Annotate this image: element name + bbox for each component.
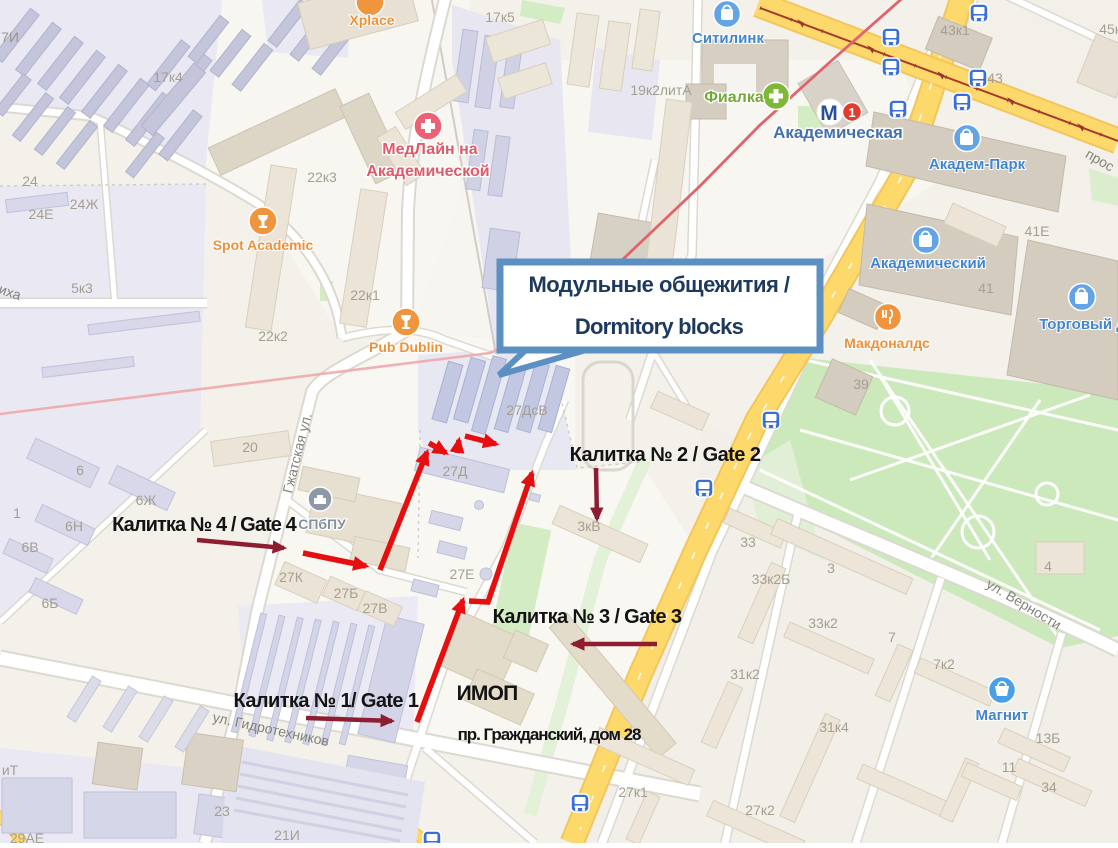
svg-text:33: 33 [740, 534, 756, 550]
svg-text:Академической: Академической [366, 163, 489, 180]
svg-text:Академический: Академический [870, 255, 986, 272]
svg-text:24Ж: 24Ж [70, 196, 99, 212]
svg-text:29АЕ: 29АЕ [10, 830, 44, 843]
svg-text:45к: 45к [1099, 21, 1118, 37]
svg-text:27К: 27К [279, 569, 304, 585]
svg-text:31к2: 31к2 [730, 666, 760, 682]
svg-text:21И: 21И [274, 827, 300, 843]
svg-text:19к2литА: 19к2литА [630, 82, 692, 98]
svg-text:22к1: 22к1 [350, 287, 380, 303]
svg-text:Калитка № 1/ Gate 1: Калитка № 1/ Gate 1 [234, 690, 419, 712]
svg-text:43: 43 [987, 70, 1003, 86]
svg-text:27к1: 27к1 [618, 784, 648, 800]
svg-text:1: 1 [848, 105, 855, 120]
svg-text:Магнит: Магнит [976, 707, 1029, 724]
svg-text:27ДсВ: 27ДсВ [506, 402, 547, 418]
svg-text:20: 20 [242, 439, 258, 455]
svg-text:24Е: 24Е [29, 206, 54, 222]
svg-text:ИМОП: ИМОП [457, 682, 518, 705]
svg-text:7: 7 [888, 629, 896, 645]
svg-text:39: 39 [853, 376, 869, 392]
svg-text:Фиалка: Фиалка [704, 89, 764, 106]
svg-text:41Е: 41Е [1025, 223, 1050, 239]
svg-text:Торговый до: Торговый до [1039, 316, 1118, 333]
svg-text:Макдоналдс: Макдоналдс [844, 335, 930, 351]
svg-text:Академическая: Академическая [773, 123, 903, 142]
svg-text:27Б: 27Б [334, 585, 359, 601]
svg-text:Калитка № 3 / Gate 3: Калитка № 3 / Gate 3 [493, 606, 682, 628]
svg-text:6Ж: 6Ж [136, 492, 157, 508]
svg-text:11: 11 [1002, 759, 1017, 775]
svg-text:7И: 7И [1, 29, 19, 45]
svg-text:6В: 6В [21, 539, 38, 555]
svg-text:6Н: 6Н [65, 518, 83, 534]
svg-text:27Е: 27Е [450, 566, 475, 582]
svg-text:иТ: иТ [2, 762, 19, 778]
svg-text:13Б: 13Б [1036, 730, 1061, 746]
svg-text:Калитка № 4 / Gate 4: Калитка № 4 / Gate 4 [112, 514, 298, 536]
svg-text:23: 23 [214, 803, 230, 819]
svg-text:27Д: 27Д [442, 463, 468, 479]
svg-text:1: 1 [13, 505, 21, 521]
svg-text:Модульные общежития /: Модульные общежития / [528, 272, 789, 297]
svg-text:Spot Academic: Spot Academic [213, 237, 314, 253]
svg-text:7к2: 7к2 [933, 656, 955, 672]
svg-text:22к2: 22к2 [258, 328, 288, 344]
svg-text:6Б: 6Б [42, 595, 59, 611]
svg-text:Xplace: Xplace [349, 12, 394, 28]
svg-text:17к4: 17к4 [153, 69, 183, 85]
svg-text:Dormitory blocks: Dormitory blocks [575, 314, 744, 339]
svg-text:41: 41 [978, 280, 994, 296]
svg-text:пр. Гражданский, дом 28: пр. Гражданский, дом 28 [458, 725, 641, 744]
svg-text:Академ-Парк: Академ-Парк [929, 156, 1026, 173]
svg-text:5к3: 5к3 [71, 280, 93, 296]
svg-text:27к2: 27к2 [745, 802, 775, 818]
svg-text:Pub Dublin: Pub Dublin [369, 339, 443, 355]
svg-text:17к5: 17к5 [485, 9, 515, 25]
svg-text:27В: 27В [363, 600, 388, 616]
svg-text:24: 24 [22, 173, 38, 189]
svg-text:33к2: 33к2 [808, 615, 838, 631]
svg-text:Ситилинк: Ситилинк [692, 30, 764, 47]
svg-text:43к1: 43к1 [940, 22, 970, 38]
svg-text:М: М [820, 102, 838, 125]
svg-text:22к3: 22к3 [307, 169, 337, 185]
svg-text:СПбПУ: СПбПУ [298, 516, 346, 532]
svg-text:3кВ: 3кВ [577, 518, 600, 534]
svg-text:31к4: 31к4 [819, 719, 849, 735]
svg-text:МедЛайн на: МедЛайн на [382, 141, 478, 158]
svg-text:Калитка № 2 / Gate 2: Калитка № 2 / Gate 2 [570, 444, 761, 466]
svg-text:6: 6 [76, 462, 84, 478]
svg-text:3: 3 [827, 560, 835, 576]
svg-text:4: 4 [1044, 558, 1052, 574]
svg-text:34: 34 [1041, 779, 1057, 795]
svg-text:33к2Б: 33к2Б [752, 571, 791, 587]
